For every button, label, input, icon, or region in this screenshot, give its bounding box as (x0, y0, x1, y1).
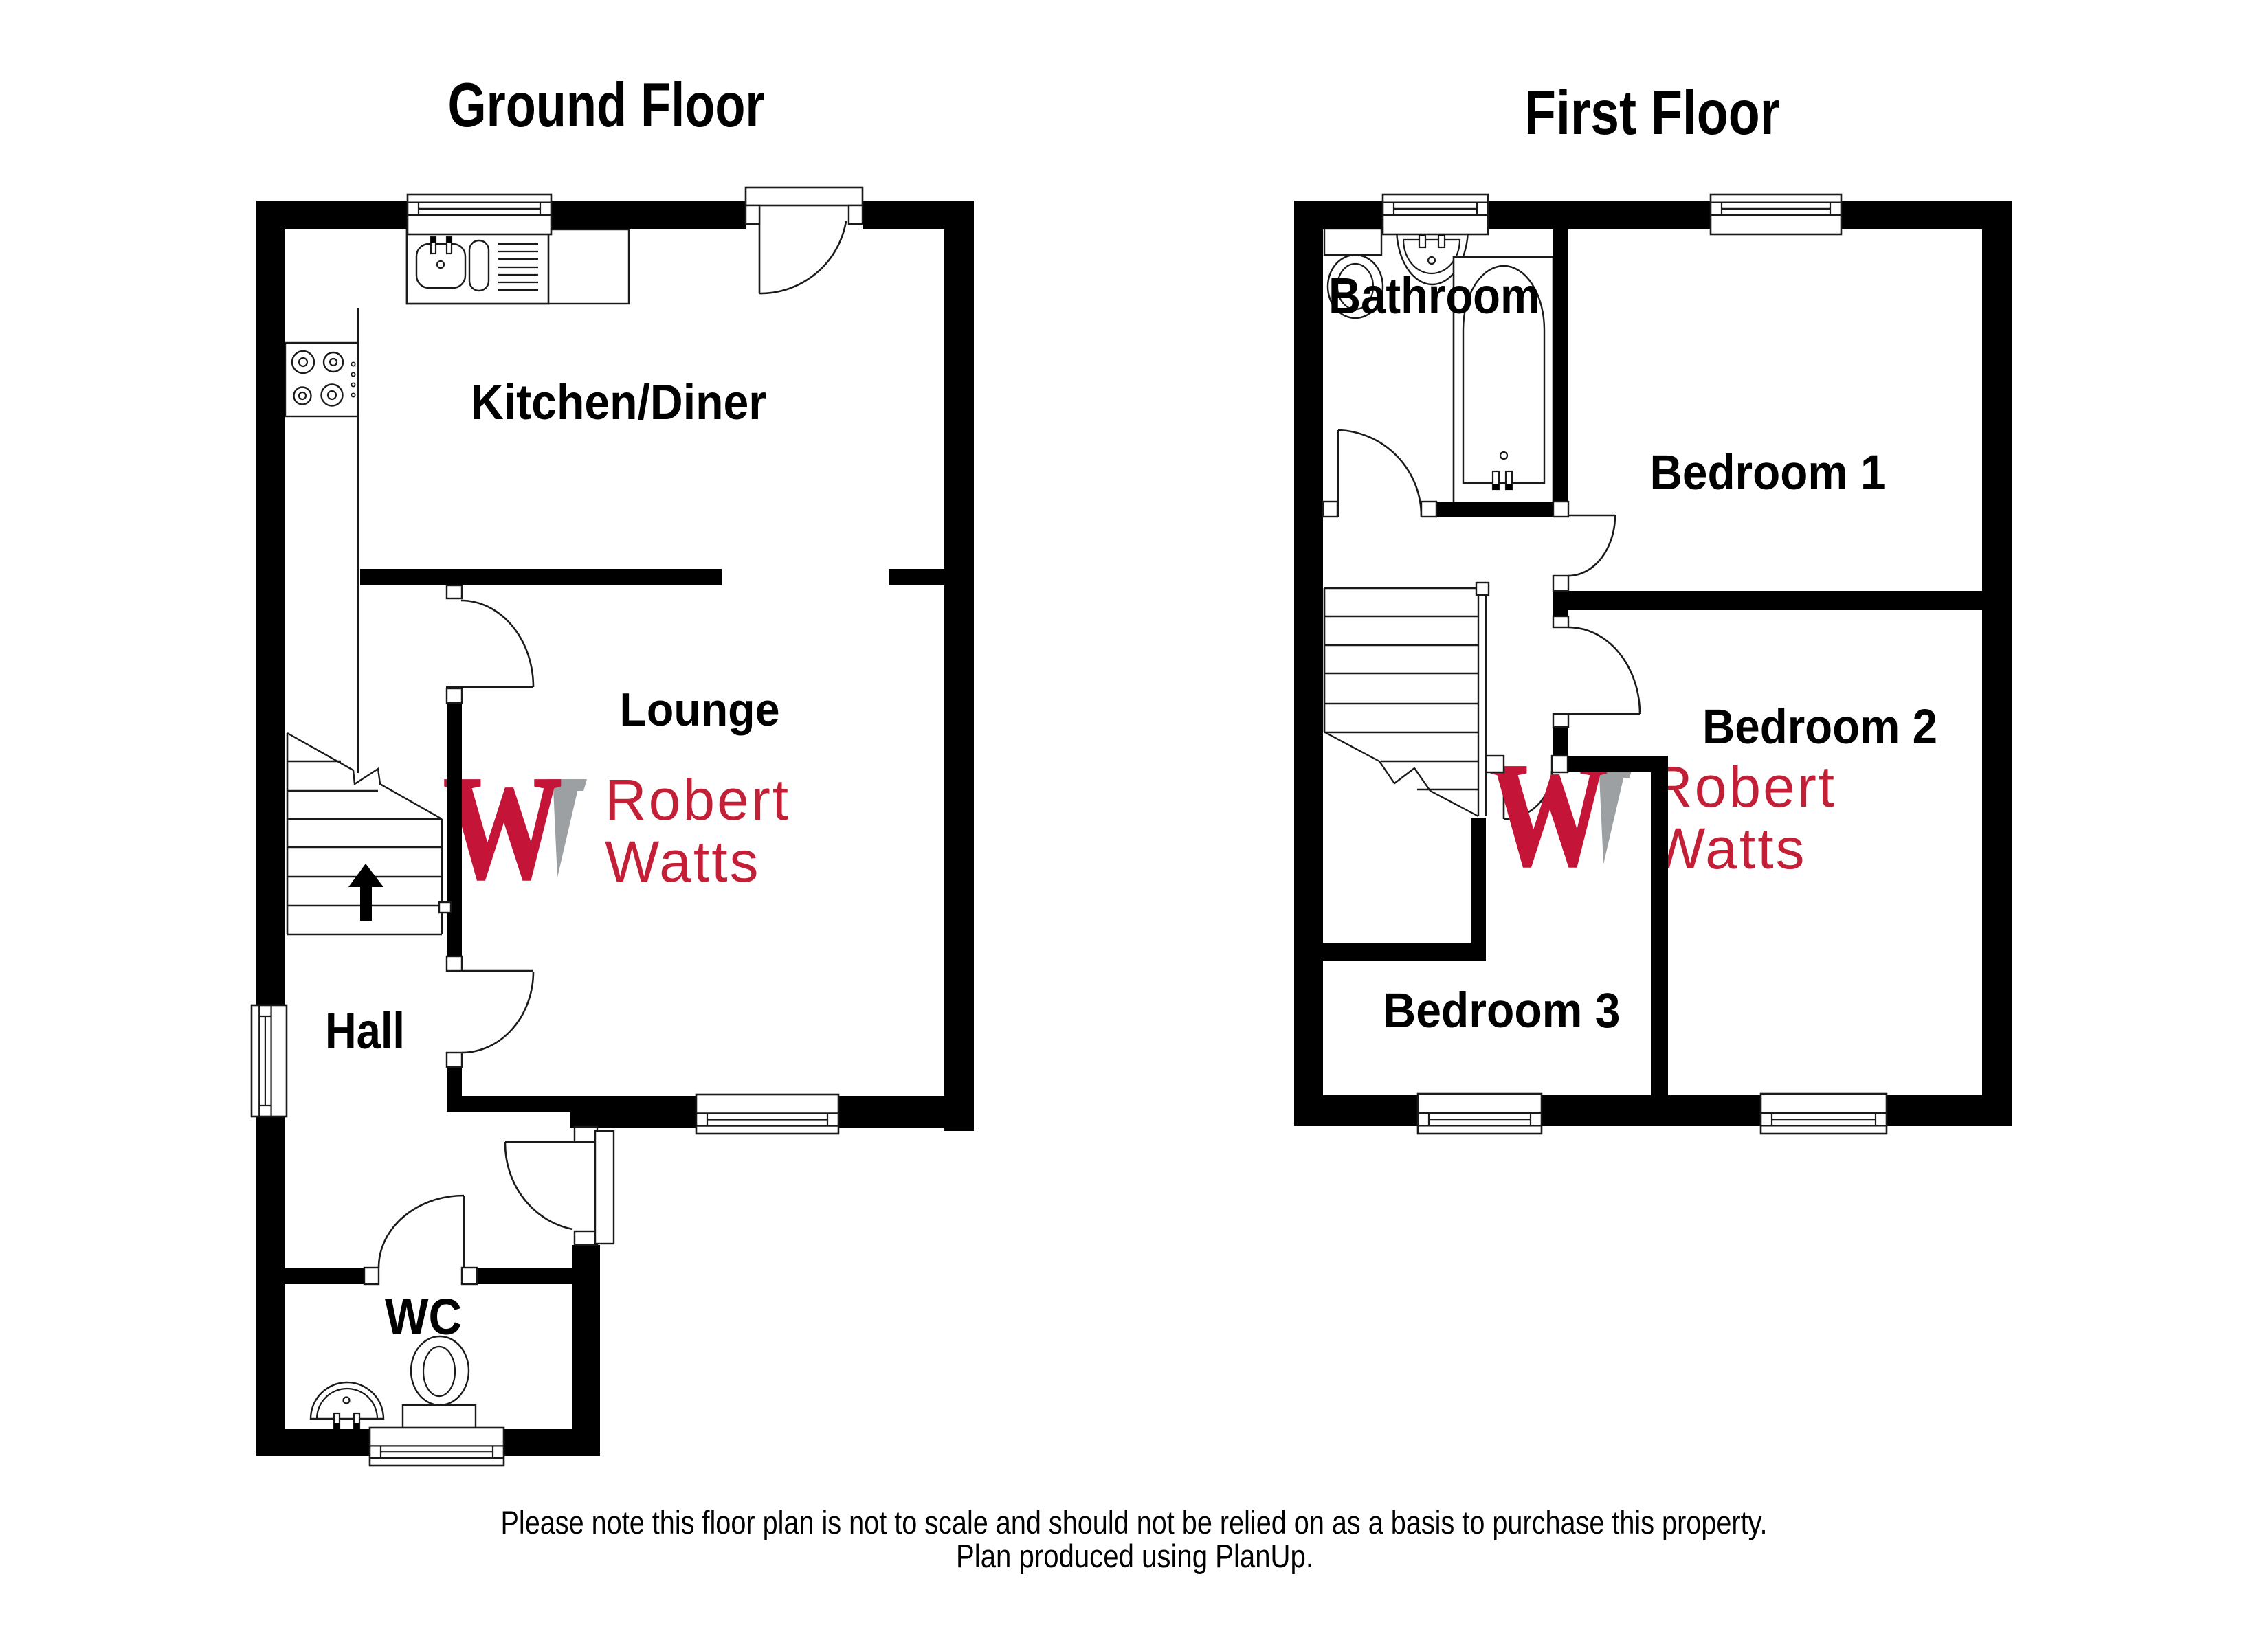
svg-text:Ground Floor: Ground Floor (448, 71, 765, 140)
svg-text:Please note this floor plan is: Please note this floor plan is not to sc… (501, 1504, 1768, 1540)
svg-text:Lounge: Lounge (620, 684, 780, 736)
svg-text:Watts: Watts (1651, 816, 1807, 881)
svg-text:Hall: Hall (325, 1002, 405, 1059)
svg-text:Watts: Watts (605, 829, 761, 894)
svg-text:Robert: Robert (605, 767, 790, 832)
svg-text:WC: WC (385, 1288, 462, 1345)
svg-text:Plan produced using PlanUp.: Plan produced using PlanUp. (956, 1538, 1313, 1574)
svg-text:Kitchen/Diner: Kitchen/Diner (471, 375, 766, 430)
svg-text:Bathroom: Bathroom (1328, 267, 1540, 324)
svg-text:Bedroom 2: Bedroom 2 (1702, 700, 1937, 754)
svg-text:First Floor: First Floor (1524, 78, 1780, 148)
svg-text:Robert: Robert (1651, 754, 1836, 819)
svg-text:Bedroom 1: Bedroom 1 (1650, 446, 1886, 500)
svg-text:Bedroom 3: Bedroom 3 (1383, 984, 1621, 1038)
